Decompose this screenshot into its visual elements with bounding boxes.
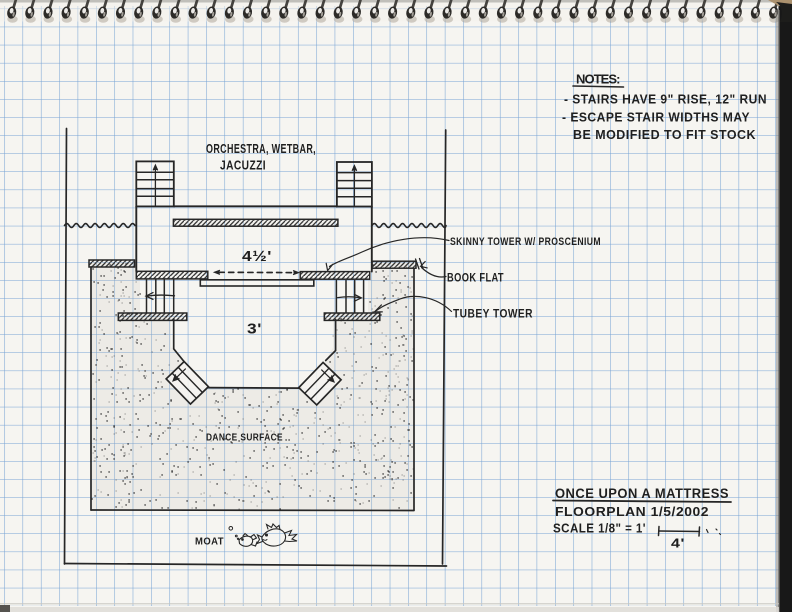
svg-text:BOOK FLAT: BOOK FLAT — [447, 273, 504, 285]
svg-text:ONCE UPON A MATTRESS: ONCE UPON A MATTRESS — [555, 486, 729, 501]
svg-text:TUBEY TOWER: TUBEY TOWER — [453, 309, 533, 321]
svg-text:MOAT: MOAT — [195, 536, 224, 548]
svg-text:4½': 4½' — [242, 249, 272, 265]
svg-text:ORCHESTRA, WETBAR,: ORCHESTRA, WETBAR, — [206, 142, 316, 156]
svg-text:- STAIRS HAVE 9" RISE, 12" RUN: - STAIRS HAVE 9" RISE, 12" RUN — [564, 93, 767, 107]
svg-text:SCALE 1/8" = 1': SCALE 1/8" = 1' — [553, 521, 646, 536]
svg-text:- ESCAPE STAIR WIDTHS MAY: - ESCAPE STAIR WIDTHS MAY — [562, 111, 750, 125]
svg-text:FLOORPLAN 1/5/2002: FLOORPLAN 1/5/2002 — [555, 504, 709, 519]
svg-text:SKINNY TOWER W/ PROSCENIUM: SKINNY TOWER W/ PROSCENIUM — [450, 236, 601, 248]
svg-text:3': 3' — [247, 322, 262, 338]
svg-text:4': 4' — [671, 537, 685, 551]
svg-text:JACUZZI: JACUZZI — [220, 159, 266, 173]
svg-text:NOTES:: NOTES: — [576, 72, 621, 87]
svg-text:DANCE SURFACE: DANCE SURFACE — [206, 432, 283, 444]
svg-text:BE MODIFIED TO FIT STOCK: BE MODIFIED TO FIT STOCK — [573, 128, 756, 142]
